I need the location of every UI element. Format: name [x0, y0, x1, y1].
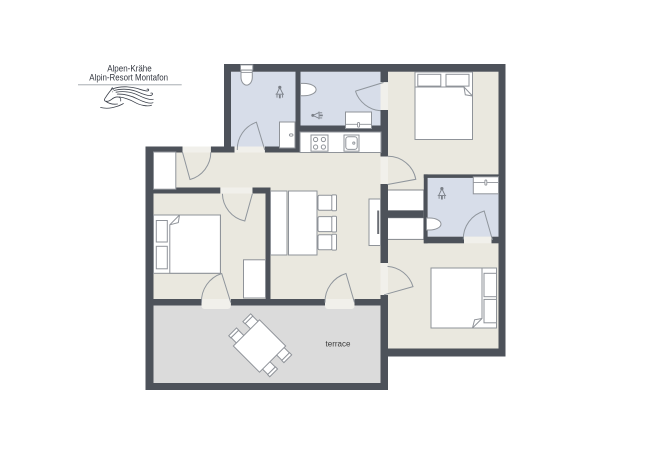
svg-text:terrace: terrace: [326, 340, 351, 349]
svg-text:Alpin-Resort Montafon: Alpin-Resort Montafon: [89, 72, 168, 82]
